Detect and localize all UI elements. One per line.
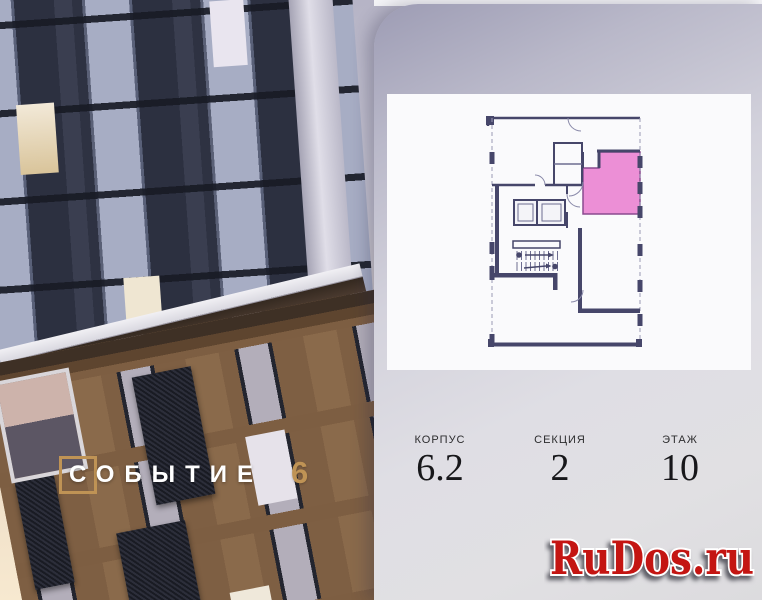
floorplan-panel <box>387 94 751 370</box>
screen: СОБЫТИЕ 6 <box>0 0 762 600</box>
spec-building-label: КОРПУС <box>380 434 500 446</box>
logo-number: 6 <box>291 457 308 488</box>
watermark: RuDos.ru <box>544 527 760 594</box>
lit-window <box>16 103 59 175</box>
spec-floor: ЭТАЖ 10 <box>620 434 740 492</box>
watermark-text: RuDos.ru <box>550 531 754 585</box>
spec-row: КОРПУС 6.2 СЕКЦИЯ 2 ЭТАЖ 10 <box>380 434 740 492</box>
spec-section: СЕКЦИЯ 2 <box>500 434 620 492</box>
highlighted-unit <box>583 152 640 214</box>
spec-floor-value: 10 <box>620 446 740 492</box>
spec-section-label: СЕКЦИЯ <box>500 434 620 446</box>
spec-building: КОРПУС 6.2 <box>380 434 500 492</box>
spec-section-value: 2 <box>500 446 620 492</box>
floorplan-diagram <box>387 94 751 370</box>
mesh-panel <box>116 520 210 600</box>
lit-window <box>230 585 280 600</box>
lit-window <box>209 0 248 67</box>
spec-floor-label: ЭТАЖ <box>620 434 740 446</box>
logo-text: СОБЫТИЕ <box>69 463 263 487</box>
info-card: КОРПУС 6.2 СЕКЦИЯ 2 ЭТАЖ 10 <box>374 4 762 600</box>
spec-building-value: 6.2 <box>380 446 500 492</box>
